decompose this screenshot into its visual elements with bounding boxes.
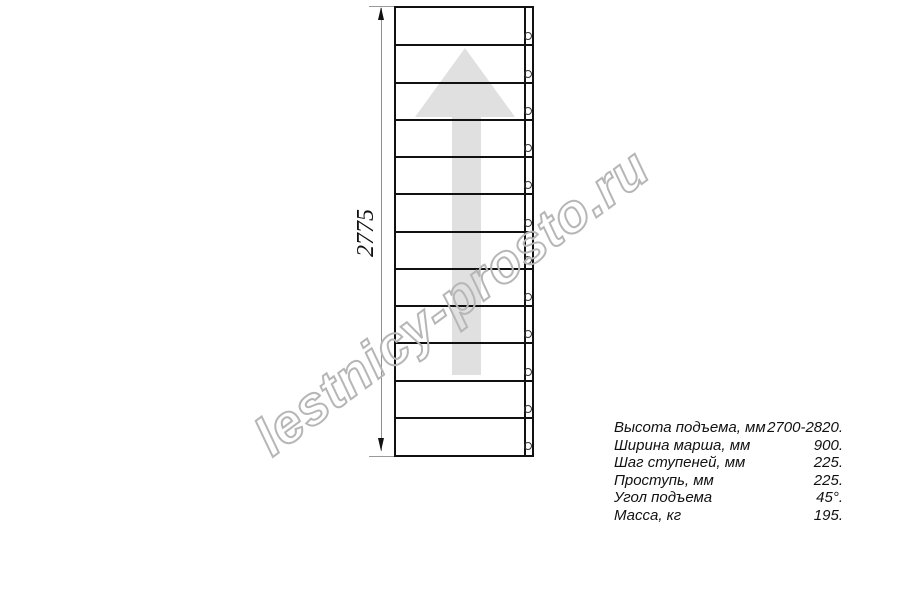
spec-row: Шаг ступеней, мм225. (614, 454, 843, 472)
spec-row: Высота подъема, мм2700-2820. (614, 419, 843, 437)
stringer-bolt-circle (524, 442, 532, 450)
step-edge-line (396, 82, 532, 84)
spec-value: 45°. (816, 489, 843, 507)
drawing-canvas: 2775 lestnicy-prosto.ru Высота подъема, … (0, 0, 900, 600)
spec-label: Шаг ступеней, мм (614, 454, 745, 472)
step-edge-line (396, 119, 532, 121)
step-edge-line (396, 44, 532, 46)
stringer-bolt-circle (524, 405, 532, 413)
stringer-bolt-circle (524, 144, 532, 152)
spec-label: Высота подъема, мм (614, 419, 766, 437)
direction-arrow-shape (415, 48, 515, 375)
spec-value: 225. (814, 454, 843, 472)
dimension-arrow-down-icon (378, 438, 384, 451)
stringer-bolt-circle (524, 70, 532, 78)
spec-label: Ширина марша, мм (614, 437, 750, 455)
step-edge-line (396, 380, 532, 382)
step-edge-line (396, 193, 532, 195)
step-edge-line (396, 156, 532, 158)
step-edge-line (396, 342, 532, 344)
dimension-line (381, 8, 382, 451)
stringer-bolt-circle (524, 107, 532, 115)
spec-label: Угол подъема (614, 489, 712, 507)
dimension-label: 2775 (352, 183, 380, 283)
dimension-arrow-up-icon (378, 7, 384, 20)
spec-row: Угол подъема45°. (614, 489, 843, 507)
stringer-bolt-circle (524, 219, 532, 227)
spec-value: 195. (814, 507, 843, 525)
stringer-bolt-circle (524, 293, 532, 301)
stringer-bolt-circle (524, 368, 532, 376)
spec-list: Высота подъема, мм2700-2820.Ширина марша… (614, 419, 843, 525)
stringer-bolt-circle (524, 256, 532, 264)
stair-flight (394, 6, 534, 457)
step-edge-line (396, 305, 532, 307)
spec-row: Ширина марша, мм900. (614, 437, 843, 455)
step-edge-line (396, 268, 532, 270)
extension-line-bottom (369, 456, 394, 457)
spec-label: Проступь, мм (614, 472, 714, 490)
spec-label: Масса, кг (614, 507, 681, 525)
spec-value: 2700-2820. (767, 419, 843, 437)
spec-value: 900. (814, 437, 843, 455)
spec-row: Проступь, мм225. (614, 472, 843, 490)
spec-row: Масса, кг195. (614, 507, 843, 525)
step-edge-line (396, 231, 532, 233)
step-edge-line (396, 417, 532, 419)
spec-value: 225. (814, 472, 843, 490)
